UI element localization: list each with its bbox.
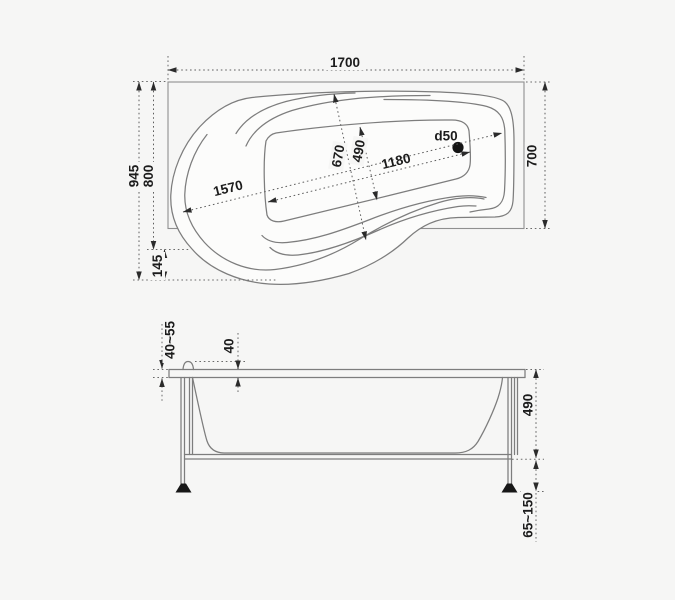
dim-label-right-width: 700 [525, 145, 540, 168]
headrest-bump-profile [183, 362, 194, 370]
dim-label-800-group: 800 [141, 162, 156, 190]
dim-label-drain: d50 [434, 129, 457, 144]
dim-label-1700-group: 1700 [326, 55, 364, 70]
dim-label-rim-step: 40 [222, 338, 237, 353]
dim-label-490-front-group: 490 [521, 391, 536, 419]
dim-label-overall-length: 1700 [330, 55, 360, 70]
dim-label-700-group: 700 [525, 142, 540, 170]
dim-label-feet-range: 65~150 [521, 492, 536, 537]
dim-label-40-group: 40 [222, 335, 237, 357]
dim-label-d50-group: d50 [434, 129, 457, 144]
drawing-canvas: 1700 700 945 800 145 1570 1180 670 [0, 0, 675, 600]
dim-label-height: 490 [521, 394, 536, 417]
left-foot [176, 484, 192, 493]
bathtub-technical-drawing: 1700 700 945 800 145 1570 1180 670 [0, 0, 675, 600]
right-foot [502, 484, 518, 493]
top-view: 1700 700 945 800 145 1570 1180 670 [127, 55, 553, 284]
dim-label-rim-thickness: 40~55 [163, 321, 178, 359]
dim-label-left-width: 945 [127, 164, 142, 187]
basin-profile-path [193, 378, 503, 454]
dim-label-945-group: 945 [127, 162, 142, 190]
front-view: 40~55 40 490 65~150 [153, 317, 544, 542]
dim-label-145-group: 145 [150, 252, 165, 280]
dim-label-65150-group: 65~150 [521, 489, 536, 541]
dim-label-left-width-inner: 800 [141, 165, 156, 188]
dim-label-bottom-offset: 145 [150, 254, 165, 277]
dim-label-4055-group: 40~55 [163, 317, 178, 363]
